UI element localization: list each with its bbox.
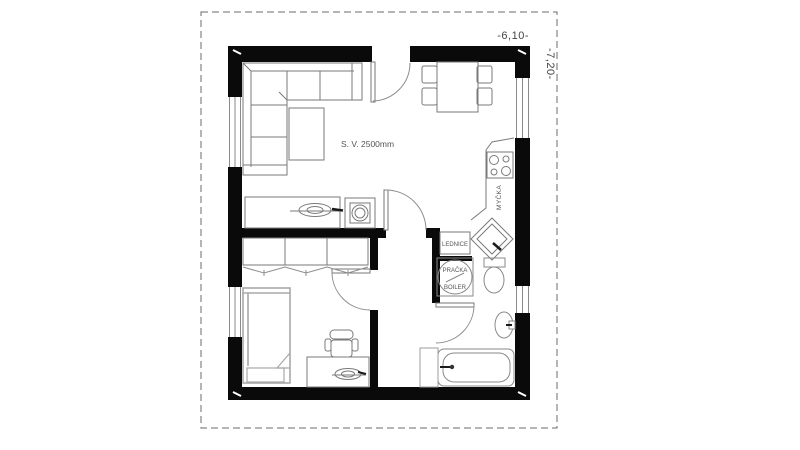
kitchen-counter — [471, 138, 514, 220]
floorplan-canvas: -6,10- -7,20- S. V. 2500mm MYČKA LEDNICE… — [0, 0, 800, 450]
desk — [307, 357, 369, 387]
round-basin-unit — [345, 198, 375, 228]
floorplan-drawing: -6,10- -7,20- S. V. 2500mm MYČKA LEDNICE… — [0, 0, 800, 450]
corner-sofa — [243, 63, 362, 175]
cooktop-icon — [487, 152, 513, 178]
doors — [332, 44, 474, 343]
coffee-table — [289, 108, 324, 160]
corner-sink-icon — [471, 218, 513, 260]
wall-corner-ticks — [233, 50, 526, 396]
washbasin-icon — [495, 312, 515, 338]
boiler-label: BOILER — [444, 285, 467, 291]
decor-bowl-icon — [290, 204, 343, 217]
dining-chair — [477, 66, 492, 83]
service-shaft — [420, 348, 438, 387]
plot-boundary — [201, 12, 557, 428]
dining-chair — [422, 88, 437, 105]
desk-decor-icon — [332, 369, 366, 380]
bedroom-door — [332, 269, 380, 310]
entrance-door — [371, 44, 410, 102]
bathroom-door — [436, 303, 474, 343]
bed — [243, 288, 290, 383]
window-living-room — [228, 97, 242, 167]
dining-chair — [477, 88, 492, 105]
desk-chair — [325, 330, 358, 357]
dishwasher-label: MYČKA — [494, 185, 503, 210]
dimension-width-label: -6,10- — [497, 30, 529, 42]
fridge-label: LEDNICE — [442, 242, 468, 248]
hall-door — [384, 190, 426, 230]
toilet-icon — [484, 258, 505, 293]
window-bedroom — [228, 287, 242, 337]
dining-chair — [422, 66, 437, 83]
ceiling-height-label: S. V. 2500mm — [341, 139, 394, 149]
washing-machine-label: PRAČKA — [443, 267, 468, 274]
window-bathroom — [515, 286, 530, 313]
tv-cabinet — [245, 197, 343, 228]
window-kitchen — [515, 78, 530, 138]
bedroom — [243, 238, 369, 387]
bathtub-icon — [438, 349, 514, 386]
walls — [228, 46, 530, 400]
dining-table — [437, 62, 478, 112]
dimension-height-label: -7,20- — [544, 48, 556, 80]
